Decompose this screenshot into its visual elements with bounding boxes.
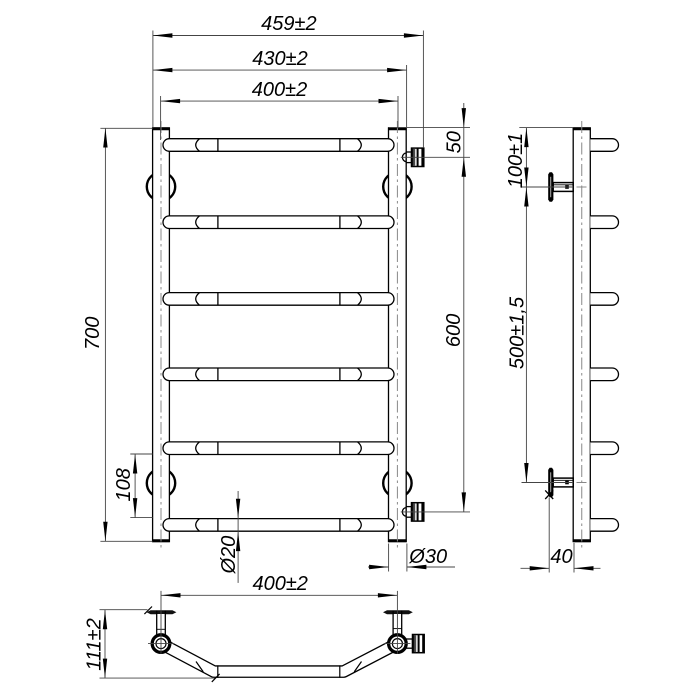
svg-text:111±2: 111±2 (84, 618, 106, 671)
svg-text:Ø20: Ø20 (218, 536, 240, 575)
svg-text:100±1: 100±1 (505, 133, 527, 188)
svg-text:50: 50 (443, 131, 465, 153)
svg-text:700: 700 (82, 317, 104, 350)
svg-text:459±2: 459±2 (261, 13, 316, 35)
svg-text:108: 108 (113, 468, 135, 501)
svg-text:Ø30: Ø30 (408, 546, 447, 568)
svg-text:400±2: 400±2 (252, 79, 307, 101)
svg-text:500±1,5: 500±1,5 (506, 296, 528, 369)
svg-text:430±2: 430±2 (252, 48, 307, 70)
svg-text:600: 600 (443, 314, 465, 347)
svg-text:40: 40 (550, 546, 572, 568)
svg-text:400±2: 400±2 (252, 573, 307, 595)
